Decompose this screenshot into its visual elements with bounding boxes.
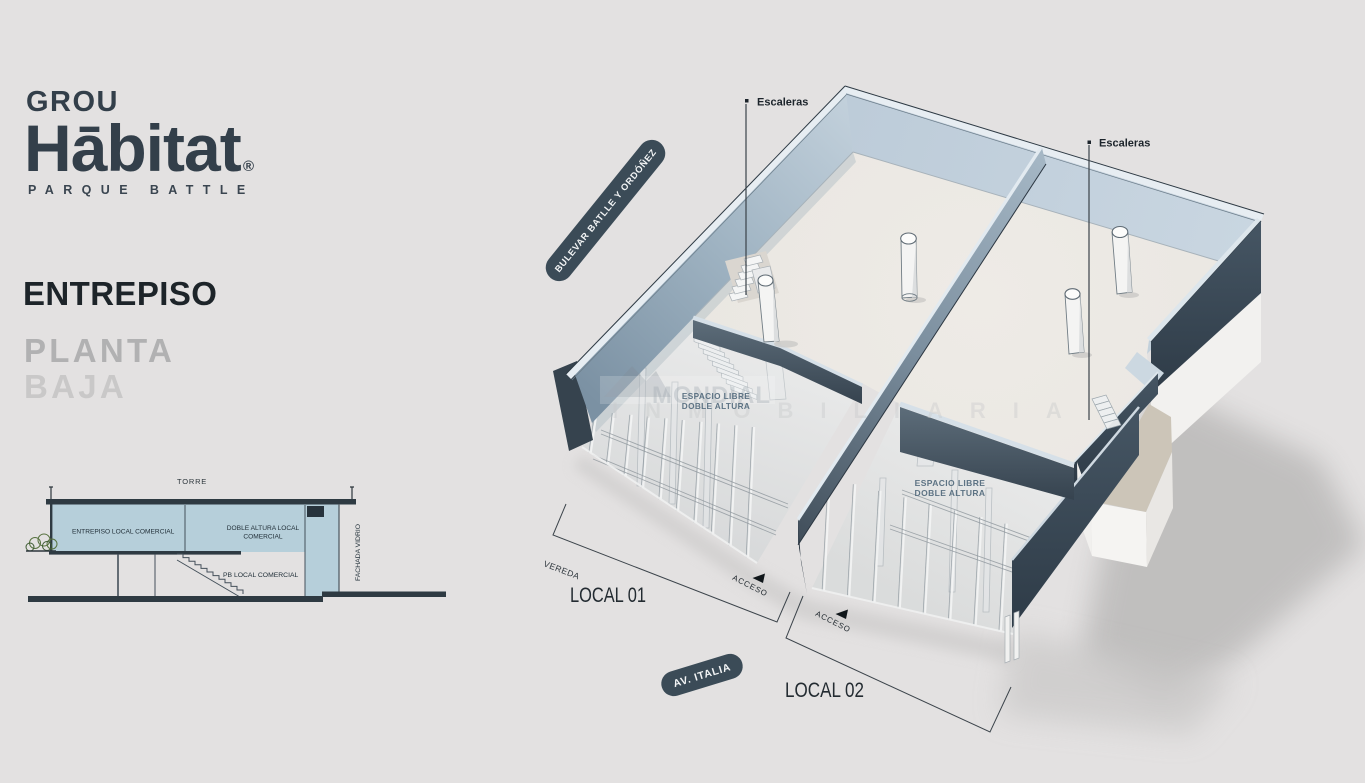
svg-text:DOBLE ALTURA LOCAL: DOBLE ALTURA LOCAL	[227, 525, 300, 532]
svg-text:ESPACIO LIBRE: ESPACIO LIBRE	[682, 392, 750, 401]
svg-text:LOCAL 02: LOCAL 02	[785, 679, 864, 702]
svg-text:FACHADA VIDRIO: FACHADA VIDRIO	[355, 524, 362, 581]
svg-text:®: ®	[243, 158, 254, 175]
svg-text:PB LOCAL COMERCIAL: PB LOCAL COMERCIAL	[223, 572, 299, 579]
svg-text:ENTREPISO: ENTREPISO	[23, 275, 217, 312]
svg-text:PLANTA: PLANTA	[24, 332, 175, 369]
svg-text:TORRE: TORRE	[177, 477, 207, 486]
svg-text:DOBLE ALTURA: DOBLE ALTURA	[682, 402, 750, 411]
svg-text:LOCAL 01: LOCAL 01	[570, 584, 646, 607]
svg-text:DOBLE ALTURA: DOBLE ALTURA	[915, 488, 986, 498]
svg-text:BAJA: BAJA	[24, 368, 127, 405]
svg-text:ESPACIO LIBRE: ESPACIO LIBRE	[915, 478, 986, 488]
svg-text:ENTREPISO LOCAL COMERCIAL: ENTREPISO LOCAL COMERCIAL	[72, 529, 175, 536]
svg-text:Escaleras: Escaleras	[1099, 138, 1150, 150]
svg-text:PARQUE BATTLE: PARQUE BATTLE	[28, 183, 255, 197]
svg-text:COMERCIAL: COMERCIAL	[243, 534, 283, 541]
svg-text:Escaleras: Escaleras	[757, 97, 808, 109]
svg-text:Hābitat: Hābitat	[24, 111, 242, 185]
